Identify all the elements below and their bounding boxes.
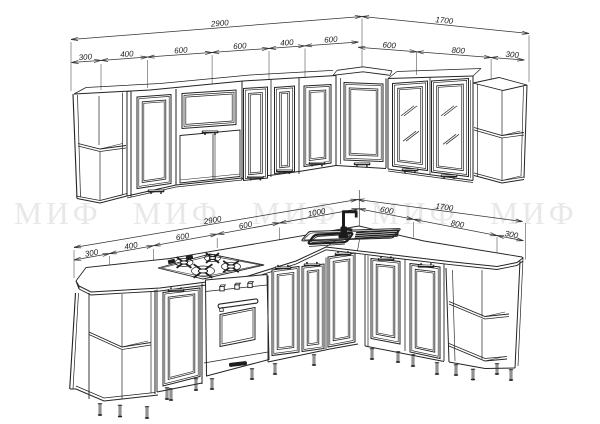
- svg-text:800: 800: [451, 46, 466, 56]
- svg-text:400: 400: [120, 49, 135, 59]
- svg-text:600: 600: [174, 45, 189, 55]
- svg-text:400: 400: [280, 38, 295, 48]
- svg-text:600: 600: [233, 41, 248, 51]
- svg-text:МИФ: МИФ: [490, 196, 578, 231]
- svg-text:2900: 2900: [210, 18, 230, 28]
- svg-text:600: 600: [324, 35, 339, 45]
- svg-text:300: 300: [78, 52, 93, 62]
- svg-text:600: 600: [382, 40, 397, 50]
- svg-text:300: 300: [505, 50, 520, 60]
- svg-text:1700: 1700: [435, 15, 454, 26]
